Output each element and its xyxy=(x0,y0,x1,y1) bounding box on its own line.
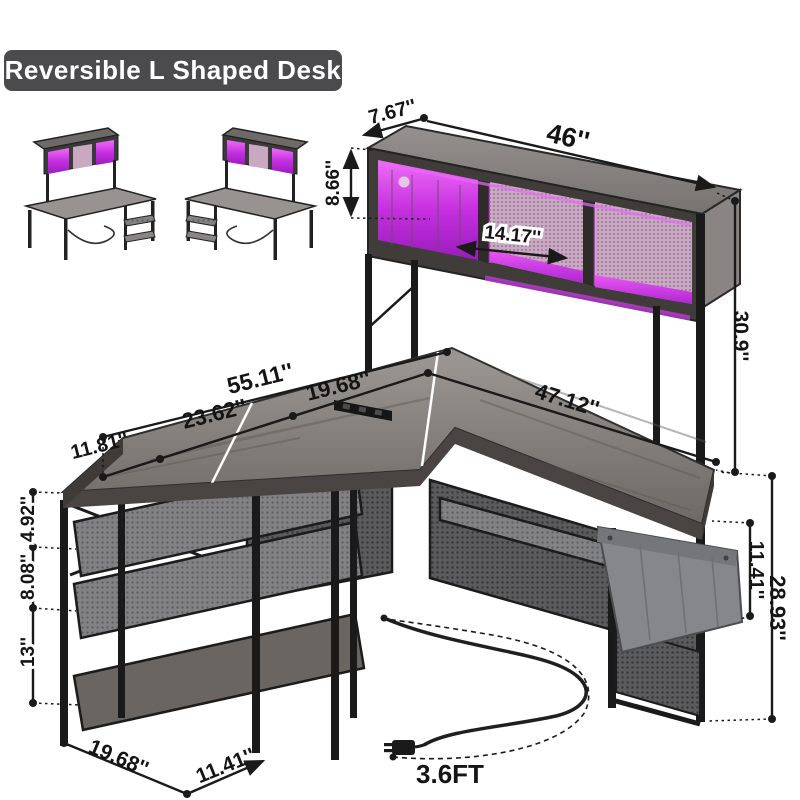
hutch-inner-right-leg xyxy=(653,306,660,452)
desk-diagram-canvas: 3.6FT 7.67'' 46'' 8.66'' 14.17'' 30.9'' … xyxy=(0,0,800,800)
left-bottom-wood-shelf xyxy=(74,614,364,730)
dim-shelf-gaps: 4.92'' 8.08'' 13'' xyxy=(18,488,80,707)
dim-label: 13'' xyxy=(18,637,39,667)
plug-icon xyxy=(384,740,426,755)
dim-label: 28.93'' xyxy=(765,575,790,641)
dim-base-depth: 19.68'' xyxy=(60,735,191,798)
dim-label: 8.66'' xyxy=(323,160,344,206)
product-dimension-diagram: Reversible L Shaped Desk xyxy=(0,0,800,800)
dim-cord-length: 3.6FT xyxy=(386,619,589,789)
desk-thumbnail-right xyxy=(185,128,315,260)
desk-leg xyxy=(60,500,68,746)
desk-leg xyxy=(252,458,260,753)
desk-leg xyxy=(331,478,339,760)
power-cord: 3.6FT xyxy=(381,615,589,790)
dim-base-shelf-width: 11.41'' xyxy=(187,744,263,794)
hutch-divider-2 xyxy=(583,200,595,287)
dim-label: 46'' xyxy=(544,118,593,157)
cable-grommet-hole xyxy=(399,177,410,188)
dim-label: 19.68'' xyxy=(85,735,152,781)
dim-label: 11.41'' xyxy=(745,541,767,599)
storage-pocket xyxy=(597,527,742,652)
desk-thumbnail-left xyxy=(26,128,156,260)
dim-label: 3.6FT xyxy=(416,759,484,789)
dim-label: 11.41'' xyxy=(193,744,259,788)
dim-label: 4.92'' xyxy=(18,496,39,542)
dim-label: 8.08'' xyxy=(18,554,39,600)
cord-line xyxy=(384,618,586,745)
dim-label: 30.9'' xyxy=(729,311,752,362)
dim-label: 7.67'' xyxy=(366,95,418,129)
